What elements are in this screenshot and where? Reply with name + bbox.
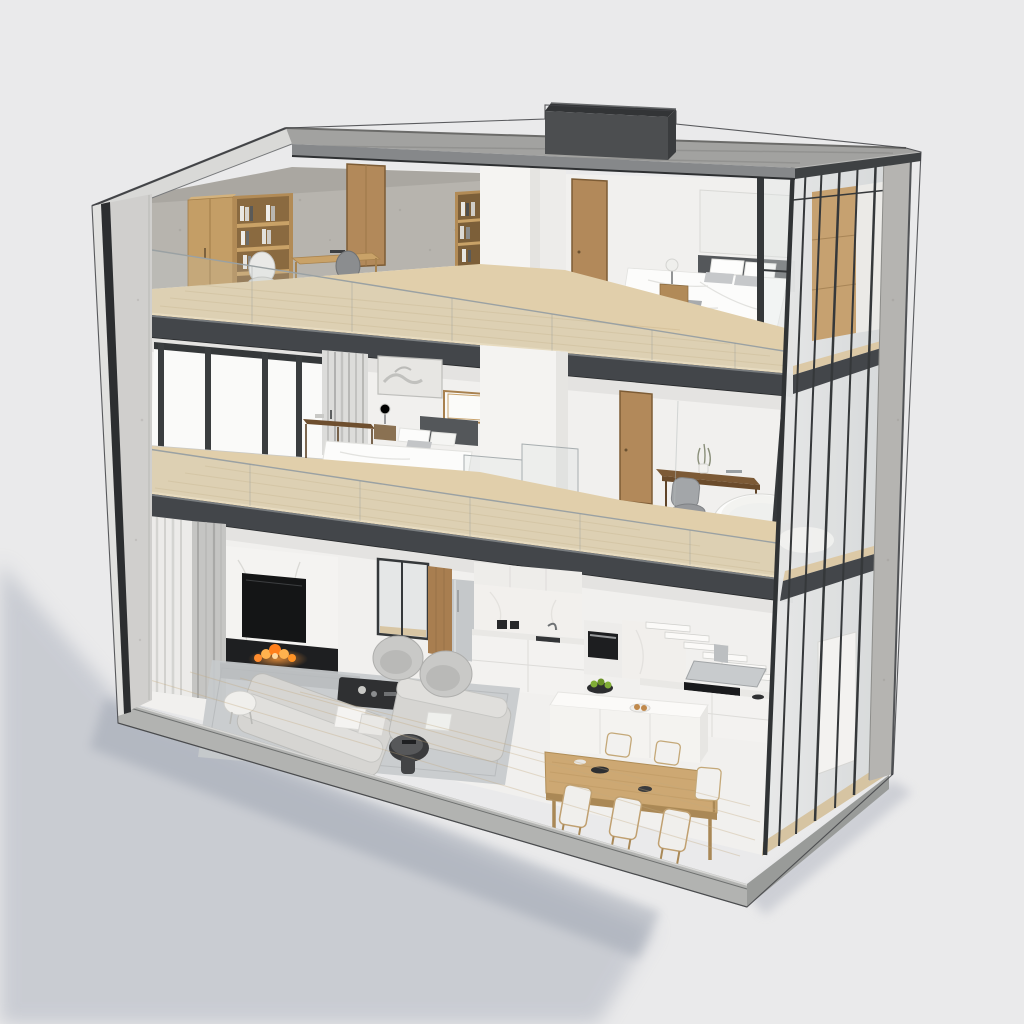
scene-canvas: [0, 0, 1024, 1024]
kitchen-back-run: [472, 562, 584, 698]
counter-bowl: [752, 695, 764, 700]
small-window: [444, 391, 486, 423]
cutaway-render: [0, 0, 1024, 1024]
coffee-machine: [497, 620, 507, 629]
fridge: [452, 579, 474, 662]
middle-door: [620, 391, 652, 504]
oven-column: [584, 620, 622, 678]
wood-wall-panel: [428, 566, 452, 658]
sliding-glass-door: [378, 559, 428, 639]
office-door: [347, 164, 385, 267]
framed-artwork: [378, 356, 442, 398]
roof-chimney: [545, 103, 676, 160]
window-wall: [151, 342, 332, 460]
